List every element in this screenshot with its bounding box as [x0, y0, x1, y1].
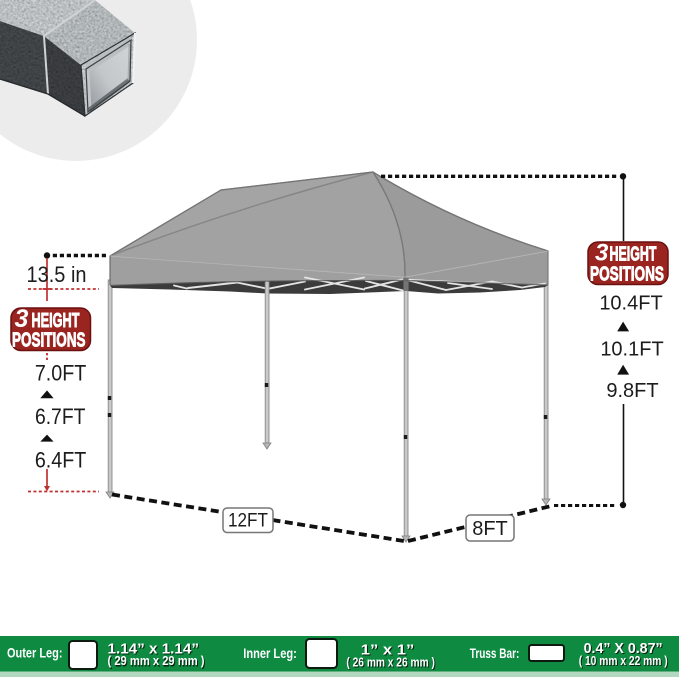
svg-text:Inner Leg:: Inner Leg: [243, 645, 296, 661]
svg-text:9.8FT: 9.8FT [606, 380, 658, 402]
svg-text:6.4FT: 6.4FT [35, 447, 87, 472]
svg-text:10.4FT: 10.4FT [599, 293, 662, 315]
svg-text:10.1FT: 10.1FT [600, 338, 663, 360]
svg-text:Truss Bar:: Truss Bar: [470, 645, 520, 661]
svg-text:12FT: 12FT [228, 510, 268, 531]
svg-text:13.5 in: 13.5 in [27, 262, 87, 287]
svg-text:( 10 mm x 22 mm ): ( 10 mm x 22 mm ) [579, 654, 668, 668]
svg-text:8FT: 8FT [472, 518, 508, 540]
svg-text:HEIGHT: HEIGHT [610, 244, 657, 266]
svg-text:( 26 mm x 26 mm ): ( 26 mm x 26 mm ) [346, 655, 435, 669]
svg-text:POSITIONS: POSITIONS [590, 263, 664, 285]
svg-text:( 29 mm x 29 mm ): ( 29 mm x 29 mm ) [108, 654, 205, 668]
svg-text:7.0FT: 7.0FT [35, 361, 87, 386]
svg-text:Outer Leg:: Outer Leg: [7, 645, 63, 661]
svg-text:6.7FT: 6.7FT [35, 404, 86, 429]
svg-text:POSITIONS: POSITIONS [12, 329, 86, 352]
